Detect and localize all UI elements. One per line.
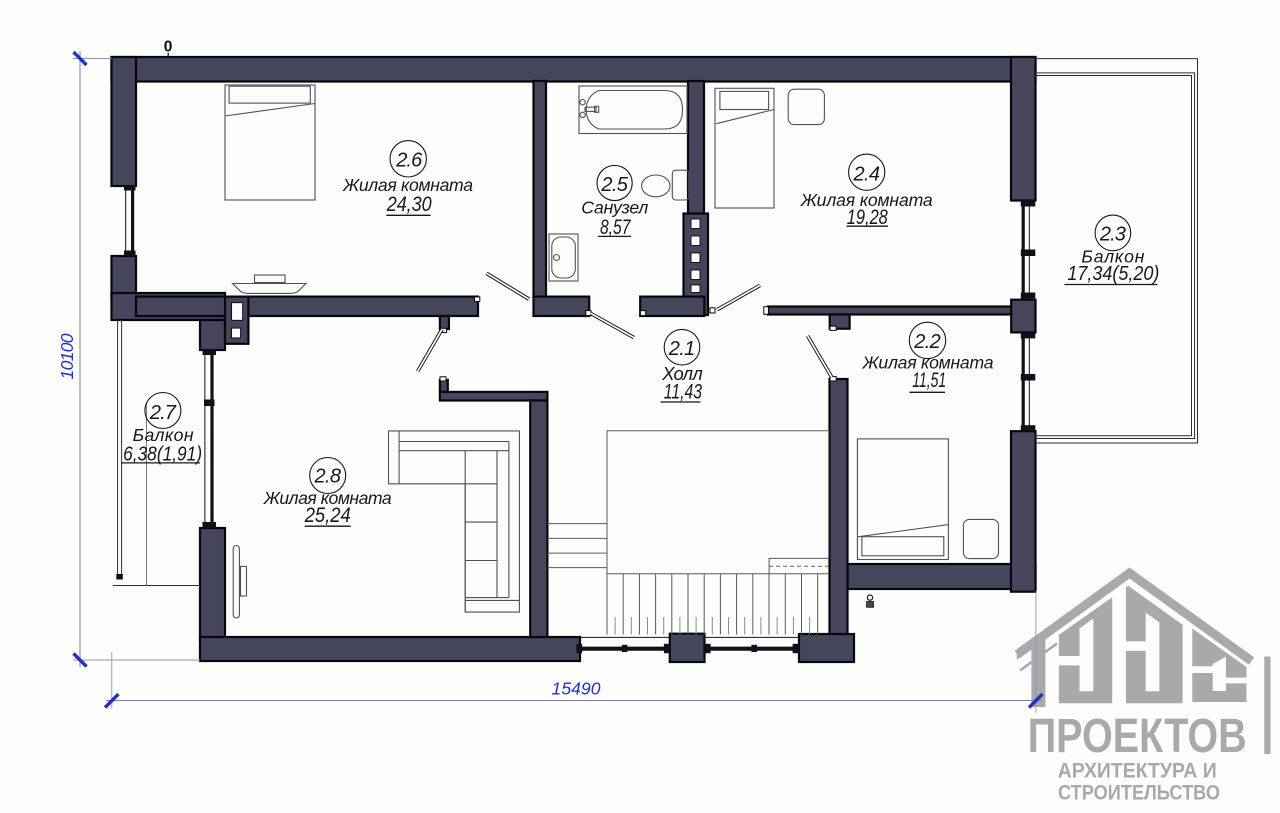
svg-text:2.7: 2.7 (149, 402, 177, 424)
svg-text:Балкон: Балкон (133, 425, 194, 445)
svg-text:17,34(5,20): 17,34(5,20) (1067, 263, 1159, 285)
svg-text:АРХИТЕКТУРА И: АРХИТЕКТУРА И (1058, 759, 1217, 783)
svg-text:Жилая комната: Жилая комната (342, 175, 473, 195)
svg-text:ПРОЕКТОВ: ПРОЕКТОВ (1028, 710, 1247, 763)
svg-text:11,51: 11,51 (912, 369, 946, 392)
svg-text:2.3: 2.3 (1099, 223, 1126, 245)
svg-text:25,24: 25,24 (304, 504, 351, 527)
svg-text:СТРОИТЕЛЬСТВО: СТРОИТЕЛЬСТВО (1058, 781, 1220, 805)
svg-text:2.5: 2.5 (600, 174, 628, 196)
svg-text:19,28: 19,28 (847, 206, 888, 229)
svg-text:6,38(1,91): 6,38(1,91) (123, 443, 202, 465)
svg-text:2.6: 2.6 (395, 149, 423, 171)
svg-text:Санузел: Санузел (581, 197, 648, 217)
svg-text:8,57: 8,57 (600, 216, 631, 239)
svg-text:2.4: 2.4 (852, 164, 880, 186)
svg-text:10100: 10100 (57, 333, 77, 379)
svg-text:24,30: 24,30 (386, 193, 432, 216)
svg-text:2.8: 2.8 (313, 466, 341, 488)
svg-text:11,43: 11,43 (664, 381, 702, 404)
svg-text:2.2: 2.2 (913, 331, 941, 353)
svg-text:15490: 15490 (552, 679, 601, 699)
svg-text:2.1: 2.1 (668, 338, 696, 360)
